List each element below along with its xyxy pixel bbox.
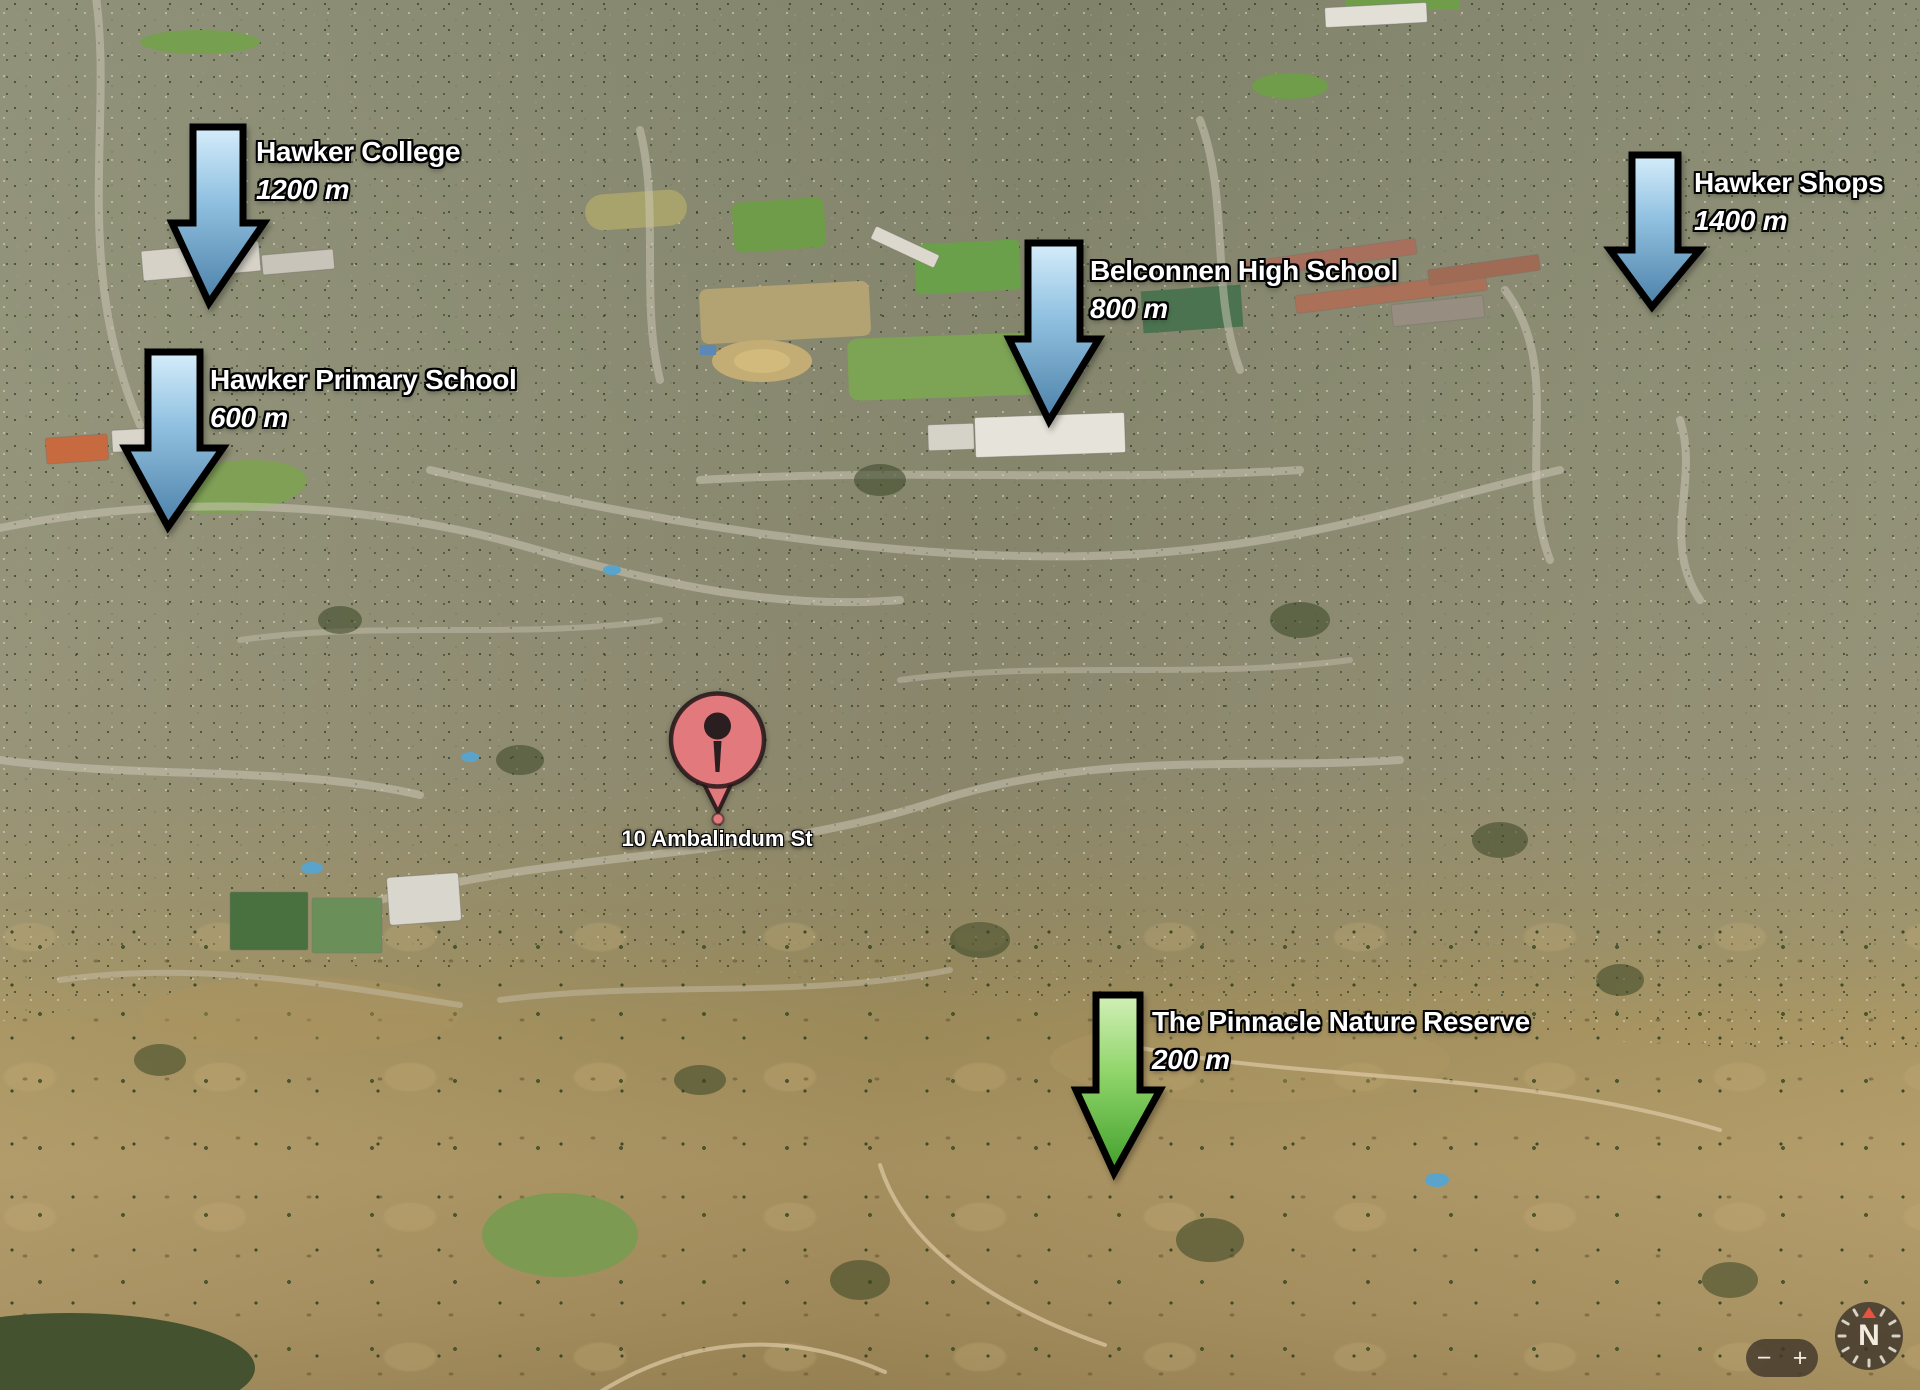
location-pin-icon[interactable] [640,662,796,840]
annotation-name: The Pinnacle Nature Reserve [1152,1003,1530,1041]
map-canvas[interactable]: Hawker College 1200 m Hawker Primary Sch… [0,0,1920,1390]
annotation-distance: 600 m [210,399,517,437]
annotation-name: Hawker College [256,133,460,171]
annotation-belconnen-high-school: Belconnen High School 800 m [1090,252,1398,328]
annotation-hawker-shops: Hawker Shops 1400 m [1694,164,1883,240]
arrow-hawker-primary-school-icon [125,352,223,527]
zoom-in-button[interactable]: + [1782,1339,1818,1377]
arrow-belconnen-high-school-icon [1009,243,1099,421]
annotation-name: Hawker Primary School [210,361,517,399]
annotation-distance: 1400 m [1694,202,1883,240]
pin-address-label: 10 Ambalindum St [621,826,812,852]
annotation-pinnacle-nature-reserve: The Pinnacle Nature Reserve 200 m [1152,1003,1530,1079]
annotation-name: Hawker Shops [1694,164,1883,202]
annotation-hawker-primary-school: Hawker Primary School 600 m [210,361,517,437]
compass-button[interactable] [1833,1300,1905,1372]
annotation-distance: 800 m [1090,290,1398,328]
annotation-distance: 1200 m [256,171,460,209]
annotation-hawker-college: Hawker College 1200 m [256,133,460,209]
zoom-controls: − + [1746,1339,1818,1377]
zoom-out-button[interactable]: − [1746,1339,1782,1377]
arrow-hawker-shops-icon [1610,155,1700,307]
arrow-pinnacle-nature-reserve-icon [1076,995,1160,1173]
arrow-hawker-college-icon [172,127,264,303]
annotation-name: Belconnen High School [1090,252,1398,290]
annotation-distance: 200 m [1152,1041,1530,1079]
